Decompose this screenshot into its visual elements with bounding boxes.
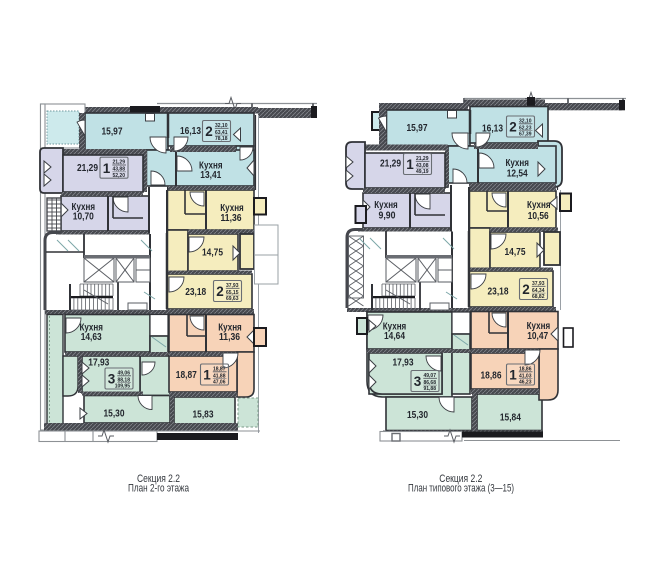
svg-text:109,95: 109,95 <box>115 384 131 390</box>
svg-text:18,87: 18,87 <box>176 369 197 381</box>
svg-text:План типового этажа (3—15): План типового этажа (3—15) <box>408 483 514 495</box>
svg-text:91,88: 91,88 <box>423 386 436 392</box>
svg-text:9,90: 9,90 <box>379 209 396 221</box>
svg-text:3: 3 <box>414 374 422 389</box>
svg-text:15,97: 15,97 <box>407 122 428 134</box>
svg-text:11,36: 11,36 <box>221 212 242 224</box>
svg-text:17,93: 17,93 <box>88 357 109 369</box>
svg-text:52,20: 52,20 <box>112 173 125 179</box>
svg-text:69,63: 69,63 <box>226 296 239 302</box>
svg-text:10,56: 10,56 <box>528 210 549 222</box>
svg-text:13,41: 13,41 <box>200 169 221 181</box>
svg-text:2: 2 <box>522 282 530 297</box>
svg-text:21,29: 21,29 <box>77 162 98 174</box>
svg-text:15,30: 15,30 <box>407 409 428 421</box>
svg-text:2: 2 <box>509 120 517 135</box>
svg-text:15,84: 15,84 <box>500 412 521 424</box>
svg-text:14,64: 14,64 <box>384 330 405 342</box>
svg-text:14,75: 14,75 <box>505 246 526 258</box>
svg-text:46,23: 46,23 <box>519 380 532 386</box>
svg-text:14,63: 14,63 <box>81 331 102 343</box>
svg-text:16,13: 16,13 <box>482 124 503 135</box>
svg-text:21,29: 21,29 <box>380 158 401 170</box>
svg-text:23,18: 23,18 <box>185 286 206 298</box>
svg-text:67,39: 67,39 <box>519 132 532 138</box>
svg-text:1: 1 <box>509 368 517 383</box>
svg-text:10,47: 10,47 <box>527 330 548 342</box>
svg-text:2: 2 <box>216 284 224 299</box>
svg-text:1: 1 <box>406 157 414 172</box>
svg-text:16,13: 16,13 <box>180 126 201 137</box>
svg-text:2: 2 <box>205 124 213 139</box>
svg-text:18,86: 18,86 <box>481 370 502 382</box>
svg-text:1: 1 <box>103 161 111 176</box>
svg-text:15,83: 15,83 <box>193 409 214 421</box>
svg-text:14,75: 14,75 <box>202 247 223 259</box>
svg-text:78,18: 78,18 <box>215 136 228 142</box>
svg-text:План 2-го этажа: План 2-го этажа <box>128 483 190 495</box>
svg-text:11,36: 11,36 <box>219 331 240 343</box>
svg-text:23,18: 23,18 <box>488 285 509 297</box>
svg-text:1: 1 <box>203 368 211 383</box>
svg-text:47,06: 47,06 <box>213 380 226 386</box>
svg-text:17,93: 17,93 <box>393 357 414 369</box>
svg-text:15,30: 15,30 <box>104 408 125 420</box>
svg-text:10,70: 10,70 <box>73 211 94 223</box>
svg-text:12,54: 12,54 <box>507 167 528 179</box>
svg-text:15,97: 15,97 <box>102 126 123 138</box>
svg-text:68,82: 68,82 <box>532 294 545 300</box>
svg-text:49,19: 49,19 <box>416 169 429 175</box>
